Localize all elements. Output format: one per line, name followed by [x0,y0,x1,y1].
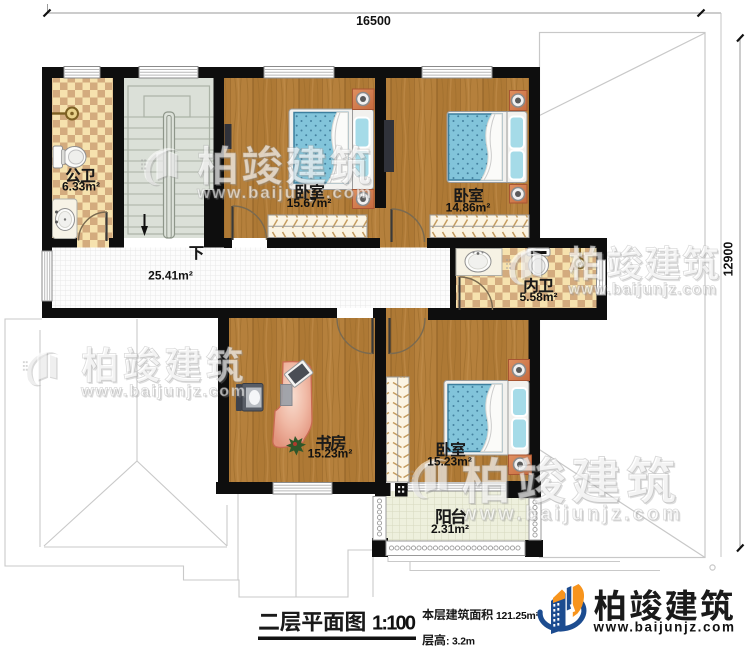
svg-text:: 121.25m²: : 121.25m² [490,611,540,622]
svg-text:1:100: 1:100 [372,613,416,635]
svg-text:5.58m²: 5.58m² [519,290,557,304]
svg-text:15.23m²: 15.23m² [427,455,472,469]
svg-text:2.31m²: 2.31m² [431,522,469,536]
svg-text:25.41m²: 25.41m² [148,269,193,283]
svg-text:www.baijunjz.com: www.baijunjz.com [567,281,716,298]
svg-text:12900: 12900 [722,242,736,277]
svg-text:16500: 16500 [356,14,391,28]
svg-text:: 3.2m: : 3.2m [446,637,475,648]
svg-text:14.86m²: 14.86m² [446,201,491,215]
svg-text:6.33m²: 6.33m² [62,180,100,194]
svg-text:15.67m²: 15.67m² [287,196,332,210]
svg-text:15.23m²: 15.23m² [308,447,353,461]
